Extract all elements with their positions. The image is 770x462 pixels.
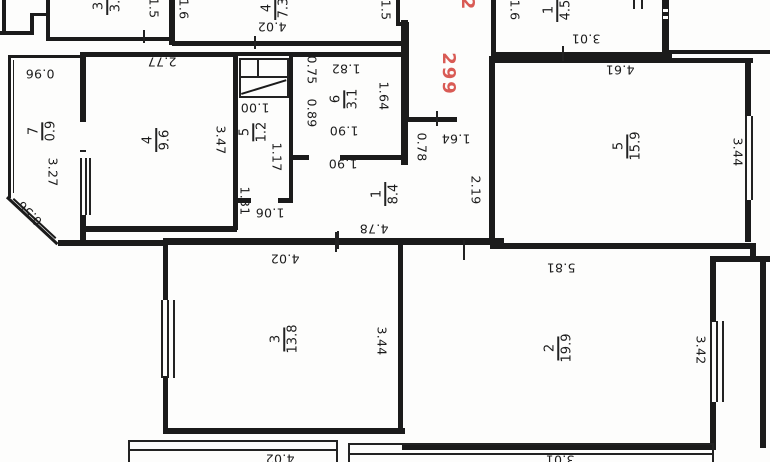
room-label-top-left: 3 3. bbox=[92, 0, 122, 15]
wall bbox=[169, 0, 175, 45]
room-area: 1.2 bbox=[255, 122, 268, 143]
dimension-3.01-top: 3.01 bbox=[571, 32, 600, 45]
wall bbox=[289, 52, 293, 202]
wall bbox=[710, 402, 716, 444]
room-number: 6 bbox=[329, 95, 342, 103]
wall-thin-line bbox=[337, 231, 339, 249]
wall bbox=[490, 243, 756, 249]
wall-thin-line bbox=[562, 46, 564, 61]
dimension-2.19: 2.19 bbox=[469, 175, 482, 204]
wall-thin-line bbox=[143, 30, 145, 43]
wall bbox=[30, 13, 34, 35]
room-number: 2 bbox=[543, 344, 556, 352]
dimension-1.5-mid: 1.5 bbox=[379, 0, 392, 20]
room-area: 3. bbox=[109, 0, 122, 12]
dimension-0.75: 0.75 bbox=[305, 55, 318, 84]
wall-thin-line bbox=[254, 36, 256, 49]
wall bbox=[278, 198, 293, 203]
wall-thin-line bbox=[348, 453, 714, 455]
room-label-balcony: 7 0.9 bbox=[27, 121, 57, 142]
dimension-1.6-mid: 1.6 bbox=[508, 0, 521, 20]
wall-thin-line bbox=[463, 240, 465, 260]
room-label-hall: 1 8.4 bbox=[370, 182, 400, 206]
wall bbox=[760, 262, 766, 448]
wall-thin-line bbox=[710, 321, 712, 402]
wall-thin-line bbox=[633, 0, 635, 9]
wall-thin-line bbox=[161, 300, 163, 378]
wall-thin-line bbox=[239, 76, 289, 78]
wall-thin-line bbox=[722, 321, 724, 402]
dimension-4.61: 4.61 bbox=[605, 63, 634, 76]
window-hatch-gap bbox=[663, 9, 668, 12]
room-number: 5 bbox=[238, 128, 251, 136]
dimension-1.64-bath: 1.64 bbox=[377, 81, 390, 110]
apartment-number-fragment-red: 2 bbox=[458, 0, 476, 11]
wall-thin-line bbox=[336, 440, 338, 462]
wall-thin-line bbox=[167, 300, 169, 378]
room-area: 19.9 bbox=[560, 334, 573, 363]
wall-thin-line bbox=[80, 158, 82, 215]
dimension-1.64-entry: 1.64 bbox=[441, 132, 470, 145]
room-number: 1 bbox=[370, 190, 383, 198]
chamfer-wall bbox=[13, 198, 56, 239]
wall bbox=[401, 20, 408, 165]
wall-thin-line bbox=[128, 440, 338, 442]
wall bbox=[0, 31, 33, 35]
room-area: 9.6 bbox=[158, 130, 171, 151]
chamfer-wall bbox=[241, 79, 287, 95]
room-number: 3 bbox=[269, 335, 282, 343]
room-area: 3.1 bbox=[346, 89, 359, 110]
wall-thin-line bbox=[436, 111, 438, 126]
wall bbox=[233, 52, 238, 230]
wall-thin-line bbox=[287, 58, 289, 98]
room-label-wc: 5 1.2 bbox=[238, 122, 268, 143]
dimension-3.44-mid: 3.44 bbox=[375, 326, 388, 355]
wall bbox=[745, 200, 751, 242]
wall-thin-line bbox=[751, 116, 753, 200]
wall-thin-line bbox=[89, 158, 91, 215]
wall bbox=[58, 240, 168, 246]
wall-thin-line bbox=[257, 58, 259, 78]
wall bbox=[491, 0, 496, 58]
dimension-0.96: 0.96 bbox=[25, 67, 54, 80]
wall bbox=[163, 243, 168, 300]
dimension-0.78: 0.78 bbox=[415, 132, 428, 161]
room-number: 1 bbox=[542, 6, 555, 14]
window-hatch-gap bbox=[663, 16, 668, 19]
wall bbox=[340, 155, 408, 160]
wall bbox=[8, 55, 84, 58]
room-label-bottom-right: 2 19.9 bbox=[543, 334, 573, 363]
dimension-4.02-balcony: 4.02 bbox=[265, 452, 294, 462]
wall bbox=[84, 52, 234, 57]
room-area: 7.3 bbox=[277, 0, 290, 18]
wall bbox=[404, 117, 457, 122]
wall bbox=[163, 428, 405, 434]
room-label-bottom-left: 3 13.8 bbox=[269, 325, 299, 354]
wall bbox=[489, 56, 495, 244]
chamfer-wall bbox=[6, 196, 59, 245]
dimension-4.02-top: 4.02 bbox=[257, 20, 286, 33]
wall bbox=[745, 58, 751, 116]
room-number: 4 bbox=[141, 136, 154, 144]
dimension-1.90-bath: 1.90 bbox=[329, 124, 358, 137]
room-area: 13.8 bbox=[286, 325, 299, 354]
dimension-1.82: 1.82 bbox=[331, 62, 360, 75]
dimension-1.06: 1.06 bbox=[255, 206, 284, 219]
wall bbox=[46, 37, 172, 41]
dimension-4.78: 4.78 bbox=[359, 222, 388, 235]
room-number: 4 bbox=[260, 4, 273, 12]
wall-thin-line bbox=[745, 116, 747, 200]
dimension-3.42: 3.42 bbox=[694, 335, 707, 364]
dimension-4.02-room3: 4.02 bbox=[270, 252, 299, 265]
dimension-0.89: 0.89 bbox=[305, 98, 318, 127]
wall-thin-line bbox=[712, 443, 714, 462]
room-area: 8.4 bbox=[387, 184, 400, 205]
room-area: 4.5 bbox=[559, 0, 572, 20]
wall bbox=[8, 55, 11, 198]
wall-thin-line bbox=[239, 96, 289, 98]
room-area: 15.9 bbox=[629, 132, 642, 161]
wall bbox=[84, 226, 237, 232]
dimension-3.47: 3.47 bbox=[214, 125, 227, 154]
wall bbox=[289, 155, 309, 160]
wall-thin-line bbox=[80, 150, 86, 152]
wall bbox=[163, 376, 168, 433]
wall-thin-line bbox=[716, 321, 718, 402]
dimension-1.17: 1.17 bbox=[270, 142, 283, 171]
wall-thin-line bbox=[335, 232, 337, 252]
wall-thin-line bbox=[348, 443, 350, 462]
room-label-kitchen: 4 9.6 bbox=[141, 128, 171, 152]
room-label-top-right: 1 4.5 bbox=[542, 0, 572, 22]
room-number: 5 bbox=[612, 142, 625, 150]
room-number: 3 bbox=[92, 2, 105, 10]
wall bbox=[2, 0, 6, 34]
wall bbox=[163, 238, 504, 245]
dimension-1.5-left: 1.5 bbox=[147, 0, 160, 18]
wall-thin-line bbox=[85, 158, 87, 215]
wall bbox=[398, 243, 403, 433]
wall bbox=[489, 58, 753, 63]
wall bbox=[666, 50, 770, 54]
apartment-number-red: 299 bbox=[439, 52, 457, 96]
wall-thin-line bbox=[641, 0, 643, 9]
wall bbox=[172, 41, 401, 46]
dimension-5.81: 5.81 bbox=[546, 261, 575, 274]
wall-thin-line bbox=[173, 300, 175, 378]
wall-thin-line bbox=[128, 449, 338, 451]
floor-plan-scan: 3 3. 4 7.3 1 4.5 7 0.9 4 9.6 5 1.2 6 3.1… bbox=[0, 0, 770, 462]
wall bbox=[710, 256, 716, 322]
room-label-top-center: 4 7.3 bbox=[260, 0, 290, 20]
dimension-3.44-right: 3.44 bbox=[731, 137, 744, 166]
room-number: 7 bbox=[27, 127, 40, 135]
wall bbox=[293, 52, 408, 57]
wall bbox=[80, 52, 86, 122]
room-label-bathroom: 6 3.1 bbox=[329, 89, 359, 110]
wall bbox=[237, 198, 251, 203]
wall bbox=[46, 0, 50, 41]
wall-thin-line bbox=[348, 443, 714, 445]
dimension-3.27: 3.27 bbox=[46, 157, 59, 186]
wall bbox=[237, 52, 290, 56]
dimension-1.00: 1.00 bbox=[240, 101, 269, 114]
wall-thin-line bbox=[239, 58, 289, 60]
room-label-bedroom-right: 5 15.9 bbox=[612, 132, 642, 161]
dimension-1.6-left: 1.6 bbox=[177, 0, 190, 19]
room-area: 0.9 bbox=[44, 121, 57, 142]
wall-thin-line bbox=[13, 60, 14, 193]
wall-thin-line bbox=[128, 440, 130, 462]
